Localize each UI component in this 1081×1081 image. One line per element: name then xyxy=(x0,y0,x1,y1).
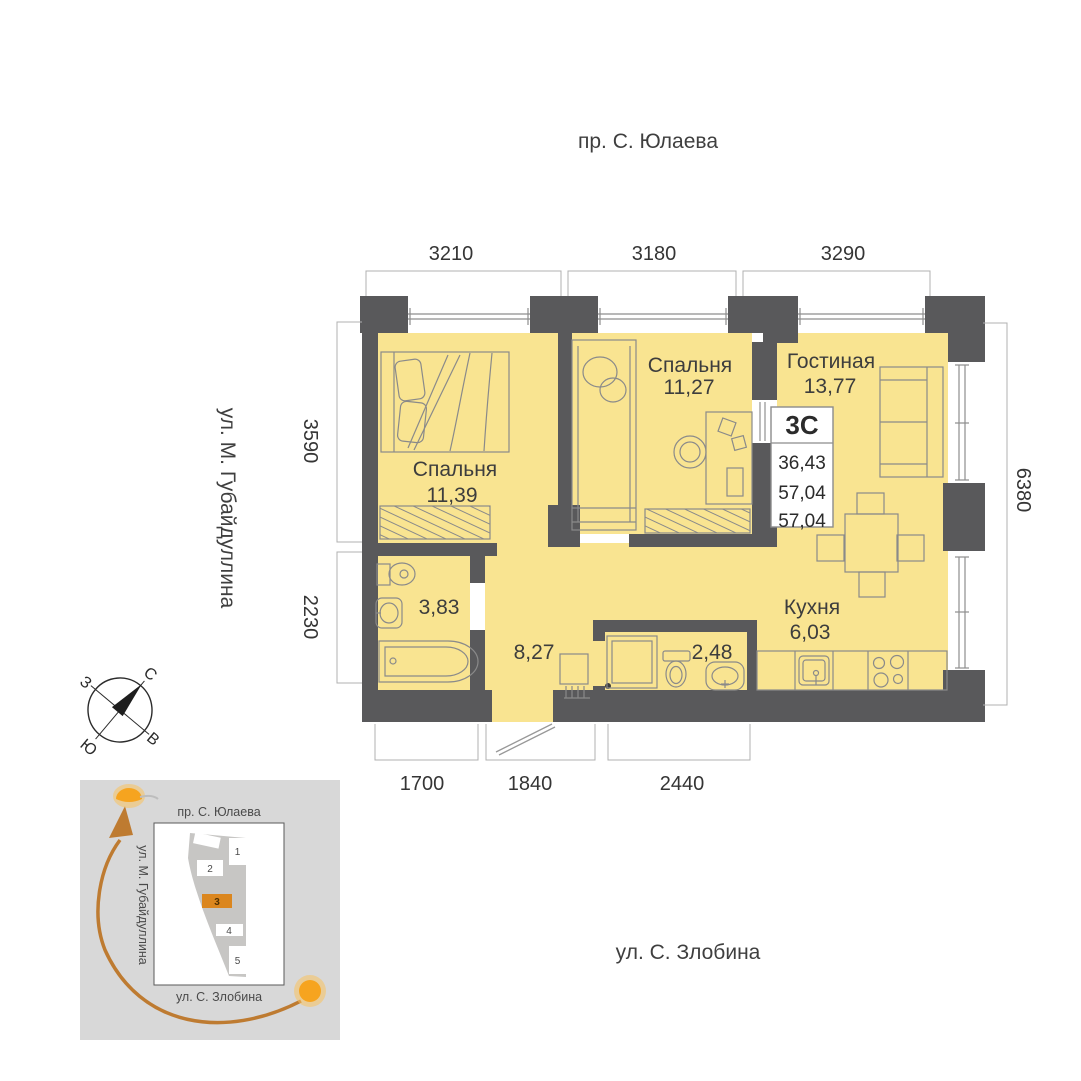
apartment-area-3: 57,04 xyxy=(778,511,826,532)
street-bottom-label: ул. С. Злобина xyxy=(616,941,761,964)
building-2-number: 2 xyxy=(207,864,213,875)
street-top-label: пр. С. Юлаева xyxy=(578,130,718,153)
dim-bottom-3: 2440 xyxy=(660,773,705,795)
compass-south: Ю xyxy=(77,736,100,759)
window-right-lower xyxy=(955,557,969,668)
entrance-door xyxy=(496,724,555,755)
bathroom-area: 3,83 xyxy=(419,596,460,619)
hallway-floor xyxy=(485,543,593,690)
apartment-area-2: 57,04 xyxy=(778,483,826,504)
dim-top-2: 3180 xyxy=(632,243,677,265)
sun-rise-icon xyxy=(299,980,321,1002)
minimap-street-left: ул. М. Губайдуллина xyxy=(136,845,150,964)
kitchen-label: Кухня xyxy=(784,596,840,619)
living-label: Гостиная xyxy=(787,350,875,373)
living-area: 13,77 xyxy=(804,375,857,398)
minimap-street-top: пр. С. Юлаева xyxy=(177,805,260,819)
bedroom2-label: Спальня xyxy=(648,354,732,377)
entrance-threshold xyxy=(492,690,553,722)
dim-left-2: 2230 xyxy=(299,595,321,640)
compass-west: З xyxy=(76,673,94,692)
kitchen-area: 6,03 xyxy=(790,621,831,644)
plan-canvas: 3С 36,43 57,04 57,04 Спальня 11,39 Спаль… xyxy=(0,0,1081,1081)
wardrobe-bedroom1-icon xyxy=(380,506,490,539)
site-minimap: 1 2 3 4 5 пр. С. Юлаева ул. М. Губайдулл… xyxy=(80,780,340,1040)
street-left-label: ул. М. Губайдуллина xyxy=(216,408,239,609)
building-3-number: 3 xyxy=(214,897,220,908)
hallway-area: 8,27 xyxy=(514,641,555,664)
bathroom-floor xyxy=(378,553,470,690)
bedroom1-label: Спальня xyxy=(413,458,497,481)
window-bedroom1 xyxy=(408,296,530,333)
dim-top-3: 3290 xyxy=(821,243,866,265)
compass-north: С xyxy=(140,664,160,684)
building-1-number: 1 xyxy=(235,847,241,858)
dim-top-1: 3210 xyxy=(429,243,474,265)
dim-right-1: 6380 xyxy=(1012,468,1034,513)
window-living xyxy=(798,296,925,333)
dim-bottom-2: 1840 xyxy=(508,773,553,795)
floor-plan-page: 3С 36,43 57,04 57,04 Спальня 11,39 Спаль… xyxy=(0,0,1081,1081)
compass-needle xyxy=(112,679,147,716)
minimap-street-bottom: ул. С. Злобина xyxy=(176,990,262,1004)
window-right-upper xyxy=(955,365,969,480)
compass-rose: С В Ю З xyxy=(45,636,193,786)
window-bedroom2 xyxy=(598,296,728,333)
dim-left-1: 3590 xyxy=(299,419,321,464)
bedroom2-area: 11,27 xyxy=(664,376,715,399)
wardrobe-bedroom2-icon xyxy=(645,509,750,533)
wc-area: 2,48 xyxy=(692,641,733,664)
living-door-leaf xyxy=(760,402,765,441)
apartment-card: 3С 36,43 57,04 57,04 xyxy=(771,407,833,532)
bedroom1-area: 11,39 xyxy=(427,484,478,507)
dim-bottom-1: 1700 xyxy=(400,773,445,795)
building-4-number: 4 xyxy=(226,926,232,937)
building-5-number: 5 xyxy=(235,956,241,967)
apartment-type-label: 3С xyxy=(785,410,818,440)
apartment-area-1: 36,43 xyxy=(778,453,826,474)
